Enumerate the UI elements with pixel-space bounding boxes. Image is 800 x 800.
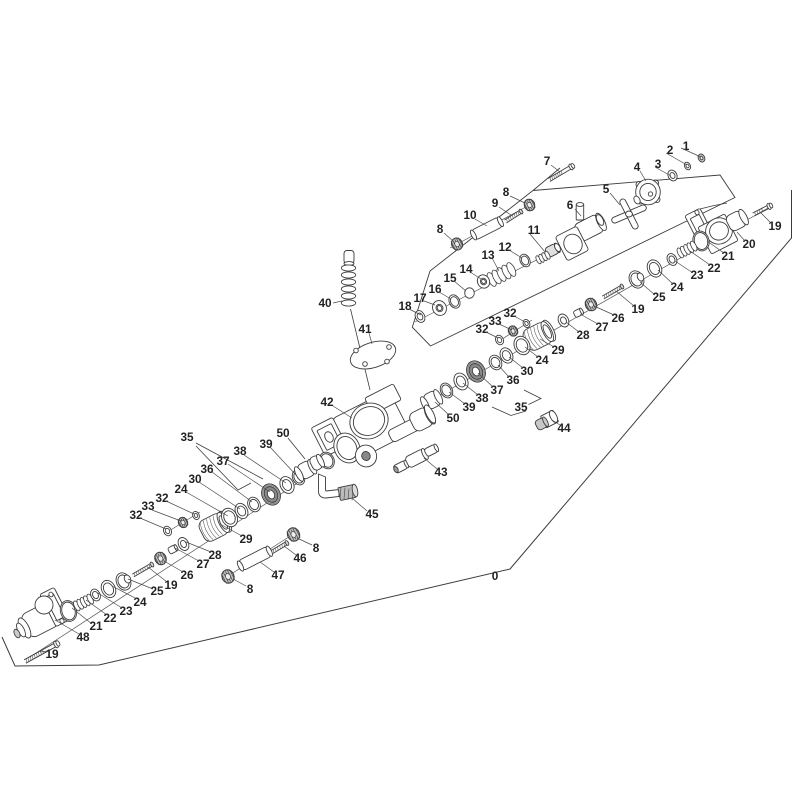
svg-text:25: 25	[652, 290, 666, 304]
svg-text:19: 19	[45, 647, 59, 661]
svg-text:24: 24	[174, 482, 188, 496]
svg-text:8: 8	[437, 222, 444, 236]
svg-text:32: 32	[155, 491, 169, 505]
svg-text:32: 32	[503, 306, 517, 320]
svg-text:42: 42	[320, 395, 334, 409]
svg-text:24: 24	[133, 595, 147, 609]
svg-text:8: 8	[247, 582, 254, 596]
svg-text:37: 37	[490, 383, 504, 397]
svg-text:41: 41	[358, 322, 372, 336]
svg-text:50: 50	[446, 411, 460, 425]
svg-text:50: 50	[276, 426, 290, 440]
svg-text:23: 23	[119, 604, 133, 618]
svg-text:4: 4	[634, 160, 641, 174]
svg-text:30: 30	[188, 472, 202, 486]
svg-text:2: 2	[667, 143, 674, 157]
svg-text:10: 10	[463, 208, 477, 222]
svg-text:8: 8	[313, 541, 320, 555]
svg-text:18: 18	[398, 299, 412, 313]
svg-text:32: 32	[475, 322, 489, 336]
svg-text:22: 22	[707, 261, 721, 275]
svg-text:7: 7	[544, 154, 551, 168]
svg-text:36: 36	[200, 462, 214, 476]
svg-text:23: 23	[690, 268, 704, 282]
svg-text:35: 35	[514, 400, 528, 414]
svg-text:24: 24	[670, 280, 684, 294]
svg-text:40: 40	[318, 296, 332, 310]
svg-text:29: 29	[239, 532, 253, 546]
svg-text:47: 47	[271, 568, 285, 582]
svg-text:22: 22	[103, 611, 117, 625]
svg-text:44: 44	[557, 421, 571, 435]
svg-text:8: 8	[503, 185, 510, 199]
svg-text:38: 38	[475, 391, 489, 405]
svg-text:33: 33	[488, 314, 502, 328]
svg-text:14: 14	[459, 262, 473, 276]
svg-text:26: 26	[180, 568, 194, 582]
svg-text:1: 1	[683, 139, 690, 153]
svg-text:5: 5	[603, 182, 610, 196]
svg-text:25: 25	[150, 584, 164, 598]
svg-text:11: 11	[528, 223, 541, 237]
svg-text:21: 21	[89, 619, 103, 633]
svg-text:17: 17	[413, 291, 427, 305]
svg-text:27: 27	[196, 557, 210, 571]
svg-text:28: 28	[576, 328, 590, 342]
svg-text:20: 20	[742, 237, 756, 251]
svg-text:35: 35	[180, 430, 194, 444]
svg-text:39: 39	[259, 437, 273, 451]
svg-text:19: 19	[631, 302, 645, 316]
svg-text:36: 36	[506, 373, 520, 387]
svg-text:48: 48	[76, 630, 90, 644]
svg-text:28: 28	[208, 548, 222, 562]
svg-text:19: 19	[164, 578, 178, 592]
svg-text:27: 27	[595, 320, 609, 334]
svg-text:26: 26	[611, 311, 625, 325]
svg-text:6: 6	[567, 198, 574, 212]
svg-text:12: 12	[498, 240, 512, 254]
svg-text:30: 30	[520, 364, 534, 378]
svg-text:45: 45	[365, 507, 379, 521]
svg-text:29: 29	[551, 343, 565, 357]
svg-text:0: 0	[492, 569, 499, 583]
svg-text:24: 24	[535, 353, 549, 367]
svg-text:19: 19	[768, 219, 782, 233]
svg-text:16: 16	[428, 282, 442, 296]
svg-text:46: 46	[293, 551, 307, 565]
svg-text:33: 33	[141, 499, 155, 513]
svg-text:37: 37	[216, 454, 230, 468]
svg-text:39: 39	[462, 400, 476, 414]
svg-text:32: 32	[129, 508, 143, 522]
svg-text:15: 15	[443, 271, 457, 285]
svg-text:43: 43	[434, 465, 448, 479]
svg-text:9: 9	[492, 196, 499, 210]
svg-text:21: 21	[721, 249, 735, 263]
